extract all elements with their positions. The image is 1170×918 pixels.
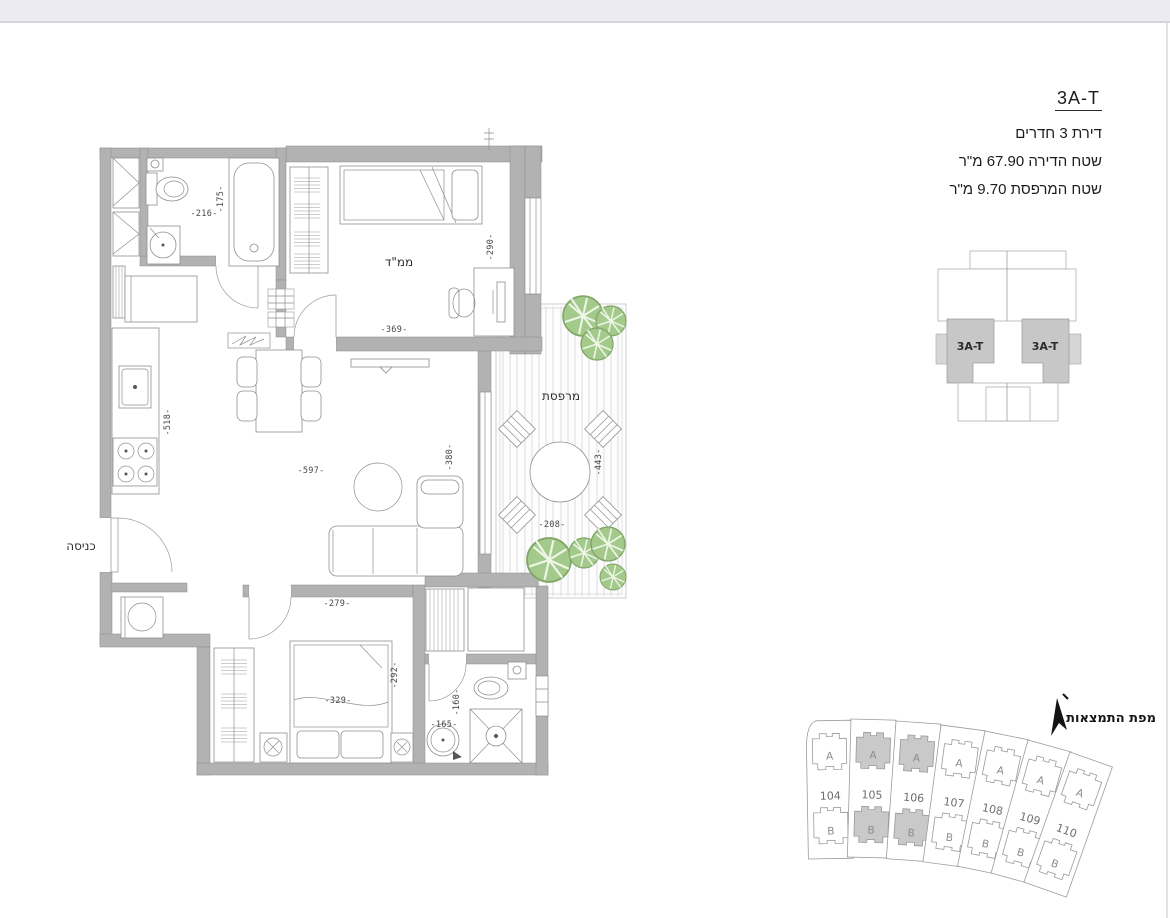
- bedroom-wardrobe: [214, 648, 254, 762]
- svg-text:A: A: [869, 749, 877, 761]
- key-unit-right-label: 3A-T: [1032, 340, 1059, 353]
- dim-balcony-width: -208-: [538, 520, 565, 530]
- bathroom-sink: [147, 226, 180, 264]
- wc-window: [536, 676, 548, 716]
- desk: [449, 268, 514, 336]
- dining-set: [237, 350, 321, 432]
- dim-bath2-width: -165-: [430, 720, 457, 730]
- svg-text:104: 104: [820, 789, 841, 802]
- single-bed: [340, 166, 482, 224]
- dim-bedroom-width: -329-: [324, 696, 351, 706]
- key-diagram: 3A-T 3A-T: [936, 251, 1081, 421]
- key-unit-left-label: 3A-T: [957, 340, 984, 353]
- toilet: [146, 173, 188, 205]
- dim-mamad-width: -369-: [380, 325, 407, 335]
- storage-box: [468, 588, 524, 651]
- corner-sofa: [329, 476, 463, 576]
- kitchen-sink: [119, 366, 151, 408]
- dim-bath-width: -216-: [190, 209, 217, 219]
- bathroom-bottom: [426, 588, 526, 763]
- svg-text:B: B: [827, 826, 834, 838]
- svg-text:106: 106: [903, 791, 925, 805]
- dim-mamad-height: -290-: [486, 233, 496, 260]
- linen-closet: [113, 158, 139, 256]
- balcony-sliding-door: [480, 392, 491, 554]
- ac-closet: [426, 589, 464, 651]
- svg-text:B: B: [907, 827, 915, 839]
- shower: [470, 709, 522, 763]
- safe-room-label: ממ"ד: [385, 255, 413, 269]
- safe-room-window: [525, 198, 541, 294]
- threshold-symbol: [228, 333, 270, 348]
- safe-room: [290, 166, 514, 336]
- fridge: [125, 276, 197, 322]
- entrance-door: [100, 518, 172, 572]
- svg-text:B: B: [867, 824, 875, 836]
- balcony-table: [530, 442, 590, 502]
- rug: [354, 463, 402, 511]
- nightstand-left: [260, 733, 287, 762]
- kitchen: [112, 266, 294, 638]
- dim-kitchen-height: -518-: [163, 408, 173, 435]
- svg-text:A: A: [826, 751, 834, 763]
- cistern: [147, 158, 163, 171]
- living-room: [237, 350, 463, 576]
- site-map-plot-104: A 104 B: [806, 720, 853, 859]
- key-left-wing: [936, 334, 948, 364]
- dim-balcony-height: -443-: [594, 448, 604, 475]
- plumbing-shaft: [268, 289, 294, 327]
- floor-plan-sheet: -216- -175- -369- -290- -518- -597- -380…: [0, 0, 1170, 918]
- entrance-label: כניסה: [66, 539, 95, 553]
- key-right-wing: [1069, 334, 1081, 364]
- tv-console: [351, 359, 429, 373]
- washing-machine: [121, 597, 163, 638]
- wc-toilet: [474, 662, 526, 699]
- dim-living-height: -380-: [445, 443, 455, 470]
- stove: [113, 438, 157, 486]
- nightstand-right: [391, 733, 413, 762]
- bedroom: [214, 641, 413, 763]
- wardrobe: [290, 167, 328, 273]
- balcony-label: מרפסת: [542, 389, 580, 403]
- dim-bedroom-height: -292-: [390, 661, 400, 688]
- safe-room-door: [294, 295, 336, 351]
- bedroom-door: [249, 586, 291, 639]
- dim-bedroom-top-width: -279-: [323, 599, 350, 609]
- dim-bath2-height: -160-: [452, 688, 462, 715]
- site-map-title: מפת התמצאות: [1066, 711, 1156, 726]
- bathtub: [229, 158, 279, 266]
- svg-text:105: 105: [861, 788, 882, 802]
- svg-text:107: 107: [943, 795, 966, 811]
- site-map: מפת התמצאות A 104 B A 105 B A 106: [806, 694, 1156, 897]
- water-heater-panel: [113, 266, 125, 318]
- dim-living-width: -597-: [297, 466, 324, 476]
- dim-bath-height: -175-: [216, 185, 226, 212]
